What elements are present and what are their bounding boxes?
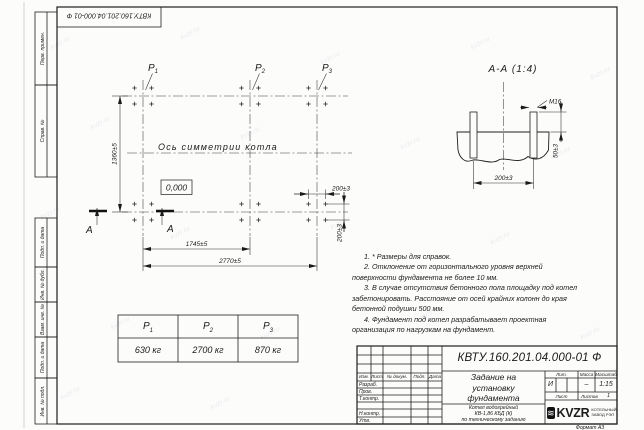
cut-label-a-right: А bbox=[166, 224, 174, 235]
kvzr-logo-icon: ≋ bbox=[547, 407, 555, 419]
tb-row-nkontr: Н.контр. bbox=[359, 411, 380, 417]
loads-table-header-p2: P2 bbox=[178, 315, 238, 338]
tb-col-data: Дата bbox=[428, 374, 442, 379]
tb-sheets-value: 1 bbox=[602, 393, 615, 399]
tb-sheets-label: Листов bbox=[581, 394, 598, 399]
side-label-sprav-no: Справ. № bbox=[40, 119, 46, 142]
corner-stamp-number: КВТУ.160.201.04.000-01 Ф bbox=[66, 12, 151, 19]
plan-view: P1 P2 P3 Ось симметрии котла 0,000 1360±… bbox=[85, 63, 352, 271]
note-2: 2. Отклонение от горизонтального уровня … bbox=[352, 262, 580, 283]
tb-row-utv: Утв. bbox=[359, 418, 370, 424]
anchor-bolt-marks bbox=[132, 86, 327, 222]
load-point-p2-label: P2 bbox=[255, 63, 266, 75]
tb-row-razrab: Разраб. bbox=[359, 382, 377, 388]
anchor-bolt-left bbox=[470, 112, 477, 158]
dim-plan-height: 1360±5 bbox=[112, 143, 119, 165]
dim-bolt-spacing-x: 200±3 bbox=[331, 186, 350, 193]
frame-side-fields: Перв. примен. Справ. № Подп. и дата Инв.… bbox=[35, 12, 57, 424]
tb-col-podp: Подп. bbox=[411, 374, 428, 379]
company-logo: ≋ KVZR КОТЕЛЬНЫЙ ЗАВОД РЭП bbox=[547, 402, 615, 423]
tb-scale-value: 1:15 bbox=[595, 378, 617, 392]
tb-col-list: Лист bbox=[371, 374, 383, 379]
level-mark: 0,000 bbox=[166, 183, 188, 193]
thread-label: М16 bbox=[549, 99, 562, 106]
side-label-podp-data-1: Подп. и дата bbox=[40, 227, 46, 259]
title-block-doc-number: КВТУ.160.201.04.000-01 Ф bbox=[443, 347, 616, 370]
notes-block: 1. * Размеры для справок. 2. Отклонение … bbox=[352, 252, 580, 336]
note-4: 4. Фундамент под котел разрабатывает про… bbox=[352, 315, 580, 336]
tb-col-izm: Изм. bbox=[357, 374, 371, 379]
section-view: А-А (1:4) М16 50±3 200±3 bbox=[457, 64, 567, 189]
kvzr-logo-subtext: КОТЕЛЬНЫЙ ЗАВОД РЭП bbox=[591, 408, 616, 418]
side-label-podp-data-2: Подп. и дата bbox=[40, 342, 46, 374]
loads-table-header-p3: P3 bbox=[238, 315, 298, 338]
dim-section-spacing: 200±3 bbox=[493, 175, 512, 182]
note-3: 3. В случае отсутствия бетонного пола пл… bbox=[352, 283, 580, 314]
side-label-perv-primen: Перв. примен. bbox=[40, 32, 46, 65]
tb-row-tkontr: Т.контр. bbox=[359, 396, 379, 402]
tb-lit-value: И bbox=[545, 378, 556, 392]
loads-table-value-p3: 870 кг bbox=[238, 338, 298, 362]
loads-table-header-p1: P1 bbox=[118, 315, 178, 338]
cut-label-a-left: А bbox=[85, 225, 93, 236]
corner-stamp: КВТУ.160.201.04.000-01 Ф bbox=[57, 7, 161, 27]
tb-scale-header: Масштаб bbox=[595, 372, 617, 377]
tb-sheet-label: Лист bbox=[545, 394, 578, 399]
loads-table-value-p1: 630 кг bbox=[118, 338, 178, 362]
symmetry-axis-label: Ось симметрии котла bbox=[158, 142, 278, 152]
tb-row-prov: Пров. bbox=[359, 389, 372, 395]
tb-col-dokum: № докум. bbox=[383, 374, 411, 379]
drawing-sheet: kvzr.ru kvzr.ru kvzr.ru kvzr.ru kvzr.ru … bbox=[0, 0, 644, 430]
format-label: Формат А3 bbox=[560, 425, 620, 430]
anchor-bolt-right bbox=[530, 112, 537, 158]
dim-bolt-spacing-y: 200±3 bbox=[337, 224, 344, 243]
dim-plan-span-mid: 1745±5 bbox=[186, 241, 208, 248]
title-block-product: Котел водогрейный КВ-1,86 КБД (К) по тех… bbox=[443, 405, 544, 423]
side-label-vzam-inv: Взам. инв. № bbox=[40, 303, 46, 335]
note-1: 1. * Размеры для справок. bbox=[352, 252, 580, 262]
dim-bolt-protrusion: 50±3 bbox=[553, 144, 560, 158]
tb-mass-value: – bbox=[578, 378, 595, 392]
load-point-p1-label: P1 bbox=[148, 63, 158, 75]
tb-lit-header: Лит. bbox=[545, 372, 578, 377]
section-title: А-А (1:4) bbox=[487, 64, 537, 75]
dim-plan-span-full: 2770±5 bbox=[218, 258, 241, 265]
side-label-inv-podl: Инв. № подл. bbox=[40, 385, 46, 416]
side-label-inv-dubl: Инв. № дубл. bbox=[40, 269, 46, 300]
title-block-doc-title: Задание на установку фундамента bbox=[443, 372, 544, 404]
load-point-p3-label: P3 bbox=[322, 63, 333, 75]
kvzr-logo-text: KVZR bbox=[557, 406, 590, 420]
tb-mass-header: Масса bbox=[578, 372, 595, 377]
loads-table-value-p2: 2700 кг bbox=[178, 338, 238, 362]
